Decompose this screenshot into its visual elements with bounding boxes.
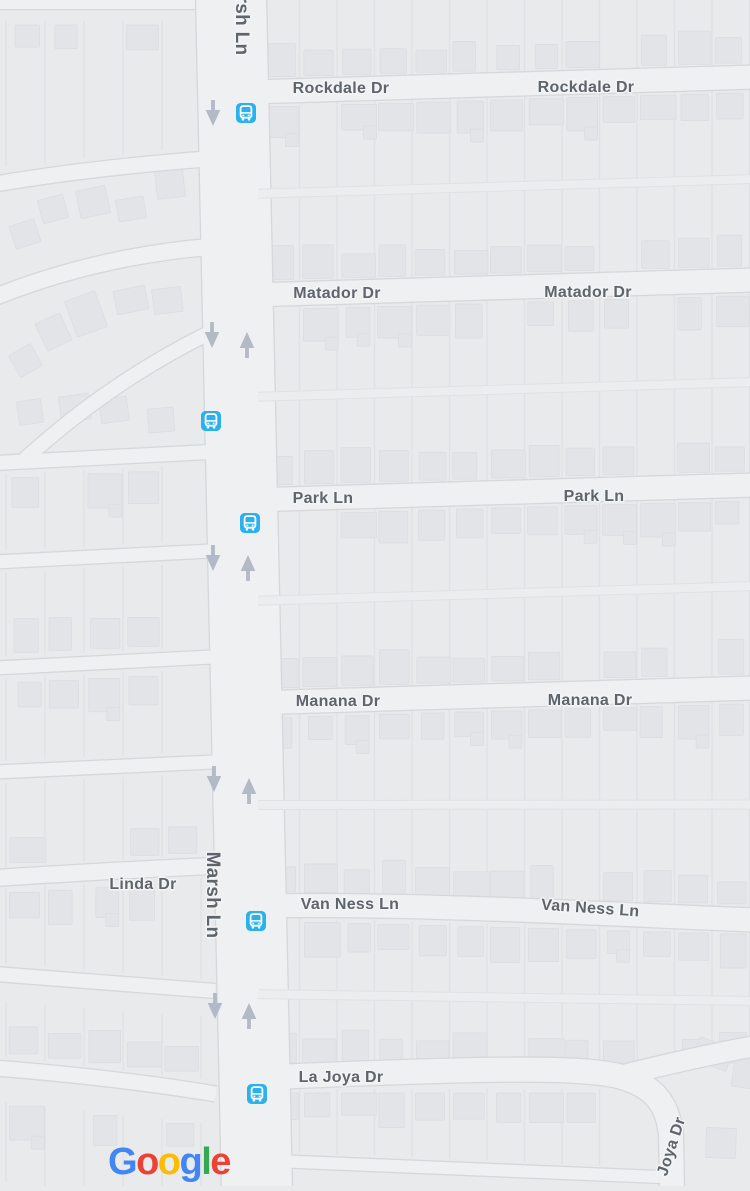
building-footprint	[678, 443, 710, 472]
building-footprint	[127, 1042, 161, 1067]
building-footprint	[490, 100, 522, 131]
street-label-manana-dr: Manana Dr	[296, 693, 381, 710]
google-logo-letter: l	[201, 1141, 210, 1183]
building-footprint	[715, 37, 741, 63]
building-footprint	[678, 502, 710, 531]
street-label-matador-dr: Matador Dr	[293, 285, 380, 302]
building-footprint	[341, 1093, 377, 1115]
building-footprint	[603, 447, 634, 475]
building-footprint	[528, 245, 562, 272]
building-footprint	[131, 829, 159, 856]
bus-stop-icon[interactable]	[201, 411, 221, 431]
street-label-van-ness-ln: Van Ness Ln	[301, 896, 399, 913]
street-label-rockdale-dr: Rockdale Dr	[293, 80, 390, 97]
building-footprint	[304, 451, 333, 484]
building-footprint	[325, 337, 338, 350]
building-footprint	[603, 505, 637, 536]
street-label-marsh-ln: Marsh Ln	[231, 0, 252, 55]
building-footprint	[417, 102, 451, 133]
building-footprint	[662, 533, 675, 546]
building-footprint	[89, 678, 120, 711]
building-footprint	[640, 706, 662, 737]
building-footprint	[55, 25, 77, 49]
building-footprint	[346, 307, 370, 337]
building-footprint	[454, 1093, 485, 1119]
building-footprint	[528, 929, 558, 962]
road	[231, 0, 257, 1186]
bus-wheel-right	[252, 528, 255, 531]
building-footprint	[529, 1093, 563, 1123]
building-footprint	[705, 1127, 736, 1158]
bus-headlight-left	[253, 1096, 255, 1098]
building-footprint	[129, 676, 158, 705]
google-logo-letter: o	[158, 1141, 180, 1183]
bus-wheel-right	[258, 926, 261, 929]
building-footprint	[567, 1093, 595, 1123]
bus-stop-icon[interactable]	[236, 103, 256, 123]
building-footprint	[303, 245, 334, 279]
building-footprint	[128, 472, 159, 504]
building-footprint	[565, 709, 591, 738]
building-footprint	[603, 1041, 634, 1063]
street-label-la-joya-dr: La Joya Dr	[299, 1069, 384, 1086]
building-footprint	[357, 333, 370, 346]
bus-stop-icon[interactable]	[247, 1084, 267, 1104]
building-footprint	[528, 507, 558, 535]
bus-headlight-right	[213, 423, 215, 425]
building-footprint	[342, 254, 376, 278]
building-footprint	[378, 306, 412, 338]
building-footprint	[565, 246, 594, 270]
building-footprint	[454, 250, 488, 274]
building-footprint	[720, 934, 746, 968]
building-footprint	[458, 927, 484, 957]
building-footprint	[49, 617, 71, 650]
building-footprint	[490, 871, 524, 898]
building-footprint	[345, 715, 369, 744]
building-footprint	[342, 656, 374, 685]
building-footprint	[492, 508, 521, 534]
street-label-marsh-ln: Marsh Ln	[202, 852, 223, 939]
building-footprint	[304, 864, 337, 892]
building-footprint	[378, 924, 409, 949]
building-footprint	[719, 639, 744, 674]
building-footprint	[75, 185, 110, 219]
building-footprint	[416, 50, 447, 72]
bus-headlight-right	[259, 1096, 261, 1098]
building-footprint	[91, 619, 120, 649]
building-footprint	[152, 286, 184, 314]
building-footprint	[679, 933, 709, 960]
building-footprint	[364, 126, 377, 139]
building-footprint	[10, 838, 46, 863]
building-footprint	[379, 245, 406, 276]
building-footprint	[717, 235, 741, 266]
bus-stop-icon[interactable]	[246, 911, 266, 931]
building-footprint	[304, 1093, 329, 1117]
building-footprint	[127, 25, 159, 50]
bus-headlight-left	[242, 115, 244, 117]
building-footprint	[49, 680, 79, 708]
building-footprint	[342, 1030, 369, 1063]
building-footprint	[415, 868, 449, 896]
building-footprint	[453, 872, 489, 897]
building-footprint	[584, 530, 597, 543]
building-footprint	[567, 98, 598, 131]
building-footprint	[696, 735, 709, 748]
building-footprint	[641, 503, 676, 537]
bus-stop-icon[interactable]	[240, 513, 260, 533]
street-label-linda-dr: Linda Dr	[109, 876, 176, 893]
building-footprint	[640, 95, 676, 119]
building-footprint	[535, 44, 557, 68]
building-footprint	[678, 297, 701, 330]
building-footprint	[642, 648, 667, 676]
building-footprint	[492, 656, 524, 680]
building-footprint	[497, 45, 520, 69]
building-footprint	[106, 914, 119, 927]
building-footprint	[715, 447, 744, 471]
building-footprint	[303, 1039, 336, 1063]
google-logo-letter: e	[210, 1141, 230, 1183]
building-footprint	[267, 107, 299, 138]
building-footprint	[155, 169, 186, 200]
building-footprint	[379, 650, 409, 685]
building-footprint	[341, 448, 371, 483]
google-logo-letter: G	[108, 1141, 136, 1183]
building-footprint	[88, 474, 122, 508]
building-footprint	[379, 103, 414, 131]
building-footprint	[471, 129, 484, 142]
building-footprint	[421, 713, 444, 739]
building-footprint	[616, 949, 629, 962]
building-footprint	[679, 238, 710, 267]
building-footprint	[48, 1033, 81, 1058]
building-footprint	[528, 710, 561, 738]
building-footprint	[383, 860, 406, 894]
building-footprint	[529, 445, 559, 476]
building-footprint	[15, 25, 39, 47]
building-footprint	[89, 1030, 121, 1062]
building-footprint	[379, 511, 408, 543]
building-footprint	[147, 407, 175, 433]
building-footprint	[568, 301, 593, 332]
building-footprint	[419, 452, 446, 480]
building-footprint	[343, 49, 372, 74]
bus-headlight-right	[258, 923, 260, 925]
building-footprint	[471, 732, 484, 745]
building-footprint	[344, 870, 369, 894]
building-footprint	[603, 97, 635, 123]
building-footprint	[681, 94, 709, 120]
building-footprint	[644, 870, 671, 901]
building-footprint	[169, 827, 197, 854]
building-footprint	[717, 296, 750, 327]
building-footprint	[379, 1093, 405, 1128]
building-footprint	[453, 452, 477, 479]
building-footprint	[341, 512, 376, 537]
building-footprint	[304, 50, 333, 76]
building-footprint	[165, 1046, 199, 1071]
building-footprint	[9, 1106, 44, 1140]
building-footprint	[531, 866, 553, 899]
building-footprint	[457, 101, 483, 133]
building-footprint	[453, 658, 485, 682]
building-footprint	[456, 509, 483, 538]
building-footprint	[496, 1093, 520, 1122]
building-footprint	[109, 504, 122, 517]
building-footprint	[107, 708, 120, 721]
bus-wheel-left	[253, 1099, 256, 1102]
street-label-rockdale-dr: Rockdale Dr	[538, 79, 635, 96]
building-footprint	[528, 302, 554, 326]
building-footprint	[720, 704, 744, 735]
building-footprint	[641, 35, 666, 65]
bus-headlight-left	[207, 423, 209, 425]
google-logo-letter: g	[180, 1141, 202, 1183]
google-logo[interactable]: Google	[108, 1141, 230, 1184]
building-footprint	[348, 924, 370, 952]
building-footprint	[16, 398, 43, 425]
street-label-manana-dr: Manana Dr	[548, 692, 633, 709]
building-footprint	[418, 510, 444, 540]
bus-headlight-left	[246, 525, 248, 527]
building-footprint	[115, 196, 146, 222]
building-footprint	[31, 1136, 44, 1149]
building-footprint	[678, 705, 709, 739]
building-footprint	[491, 450, 525, 478]
google-logo-letter: o	[136, 1141, 158, 1183]
building-footprint	[490, 247, 521, 273]
street-label-matador-dr: Matador Dr	[544, 284, 631, 301]
building-footprint	[12, 477, 39, 507]
building-footprint	[453, 41, 476, 71]
building-footprint	[415, 249, 445, 275]
building-footprint	[529, 99, 563, 125]
building-footprint	[717, 93, 744, 119]
building-footprint	[14, 619, 38, 653]
bus-wheel-right	[259, 1099, 262, 1102]
building-footprint	[715, 501, 739, 524]
building-footprint	[48, 890, 72, 924]
building-footprint	[356, 740, 369, 753]
building-footprint	[419, 926, 446, 956]
building-footprint	[303, 309, 338, 342]
building-footprint	[285, 134, 298, 147]
building-footprint	[398, 334, 411, 347]
building-footprint	[267, 44, 295, 77]
building-footprint	[679, 31, 711, 64]
bus-headlight-right	[252, 525, 254, 527]
map-canvas[interactable]: Rockdale DrRockdale DrMatador DrMatador …	[0, 0, 750, 1186]
bus-wheel-right	[213, 426, 216, 429]
building-footprint	[416, 1093, 445, 1120]
building-footprint	[566, 930, 596, 959]
bus-wheel-left	[207, 426, 210, 429]
map-svg[interactable]: Rockdale DrRockdale DrMatador DrMatador …	[0, 0, 750, 1186]
building-footprint	[379, 450, 408, 481]
building-footprint	[308, 716, 332, 739]
building-footprint	[128, 618, 159, 647]
building-footprint	[718, 882, 747, 904]
building-footprint	[379, 714, 409, 739]
building-footprint	[604, 873, 633, 901]
building-footprint	[604, 652, 636, 678]
building-footprint	[566, 42, 599, 68]
building-footprint	[566, 448, 594, 476]
building-footprint	[417, 305, 450, 335]
building-footprint	[604, 300, 628, 329]
building-footprint	[9, 1027, 38, 1054]
building-footprint	[679, 875, 708, 903]
building-footprint	[380, 49, 406, 74]
building-footprint	[303, 658, 337, 687]
bus-headlight-left	[252, 923, 254, 925]
bus-wheel-left	[252, 926, 255, 929]
building-footprint	[490, 928, 519, 963]
building-footprint	[642, 241, 670, 269]
building-footprint	[528, 652, 559, 679]
bus-wheel-left	[242, 118, 245, 121]
building-footprint	[304, 922, 340, 957]
bus-wheel-right	[248, 118, 251, 121]
building-footprint	[623, 531, 636, 544]
building-footprint	[585, 127, 598, 140]
bus-headlight-right	[248, 115, 250, 117]
building-footprint	[643, 932, 670, 957]
street-label-park-ln: Park Ln	[564, 488, 625, 505]
building-footprint	[604, 708, 637, 731]
building-footprint	[18, 682, 41, 707]
building-footprint	[455, 304, 482, 338]
building-footprint	[417, 657, 451, 683]
building-footprint	[9, 892, 39, 917]
bus-wheel-left	[246, 528, 249, 531]
building-footprint	[509, 735, 522, 748]
street-label-park-ln: Park Ln	[293, 490, 354, 507]
